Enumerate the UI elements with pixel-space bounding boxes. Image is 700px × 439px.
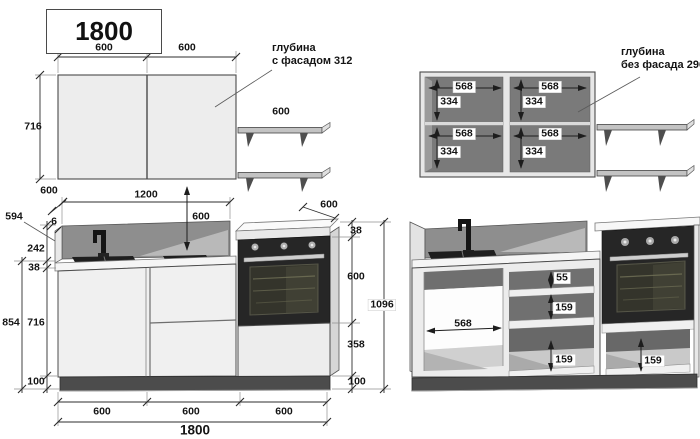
dim-shelf-width: 600 — [272, 107, 290, 118]
dim-oven-height: 600 — [347, 272, 365, 283]
depth-with-facade-note: глубина с фасадом 312 — [272, 42, 352, 68]
dim-compartment-width: 568 — [539, 129, 561, 140]
base-cabinets-front-view — [14, 187, 391, 426]
dim-plinth-height-right: 100 — [348, 377, 366, 388]
kitchen-technical-drawing: 1800 глубина с фасадом 312 глубина без ф… — [0, 0, 700, 439]
depth-without-facade-note: глубина без фасада 296 — [621, 46, 700, 72]
note-line: без фасада 296 — [621, 59, 700, 72]
dim-base-module-3: 600 — [275, 407, 293, 418]
dim-under-oven-height: 358 — [347, 340, 365, 351]
dim-counter-depth: 600 — [40, 186, 58, 197]
dim-backsplash-height: 242 — [27, 244, 45, 255]
dim-compartment-height: 334 — [523, 97, 545, 108]
dim-base-module-1: 600 — [93, 407, 111, 418]
dim-base-total-height: 854 — [2, 318, 20, 329]
dim-drawer-2-height: 159 — [553, 303, 575, 314]
dim-upper-width-right: 600 — [178, 43, 196, 54]
dim-compartment-height: 334 — [523, 147, 545, 158]
dim-opening-width: 568 — [454, 319, 472, 330]
dim-backsplash-length: 594 — [5, 212, 23, 223]
dim-upper-height: 716 — [24, 122, 42, 133]
dim-compartment-height: 334 — [438, 147, 460, 158]
dim-oven-drawer-height: 159 — [642, 356, 664, 367]
dim-oven-counter-depth: 600 — [320, 200, 338, 211]
dim-compartment-width: 568 — [453, 129, 475, 140]
dim-drawer-3-height: 159 — [553, 355, 575, 366]
dim-drawer-1-height: 55 — [554, 273, 570, 284]
upper-cabinets-front-view — [35, 51, 330, 192]
dim-compartment-width: 568 — [539, 82, 561, 93]
dim-compartment-width: 568 — [453, 82, 475, 93]
dim-compartment-height: 334 — [438, 97, 460, 108]
dim-tall-unit-total-height: 1096 — [368, 300, 395, 311]
note-line: с фасадом 312 — [272, 55, 352, 68]
note-line: глубина — [621, 46, 700, 59]
dim-base-module-2: 600 — [182, 407, 200, 418]
dim-base-total-width: 1800 — [180, 425, 210, 436]
dim-door-height: 716 — [27, 318, 45, 329]
dim-panel-thickness: 6 — [51, 217, 57, 228]
dim-upper-width-left: 600 — [95, 43, 113, 54]
dim-upper-to-counter-gap: 600 — [192, 212, 210, 223]
dim-backsplash-span: 1200 — [134, 190, 157, 201]
dim-plinth-height-left: 100 — [27, 377, 45, 388]
dim-counter-thickness-right: 38 — [350, 226, 362, 237]
dim-counter-thickness-left: 38 — [28, 263, 40, 274]
note-line: глубина — [272, 42, 352, 55]
